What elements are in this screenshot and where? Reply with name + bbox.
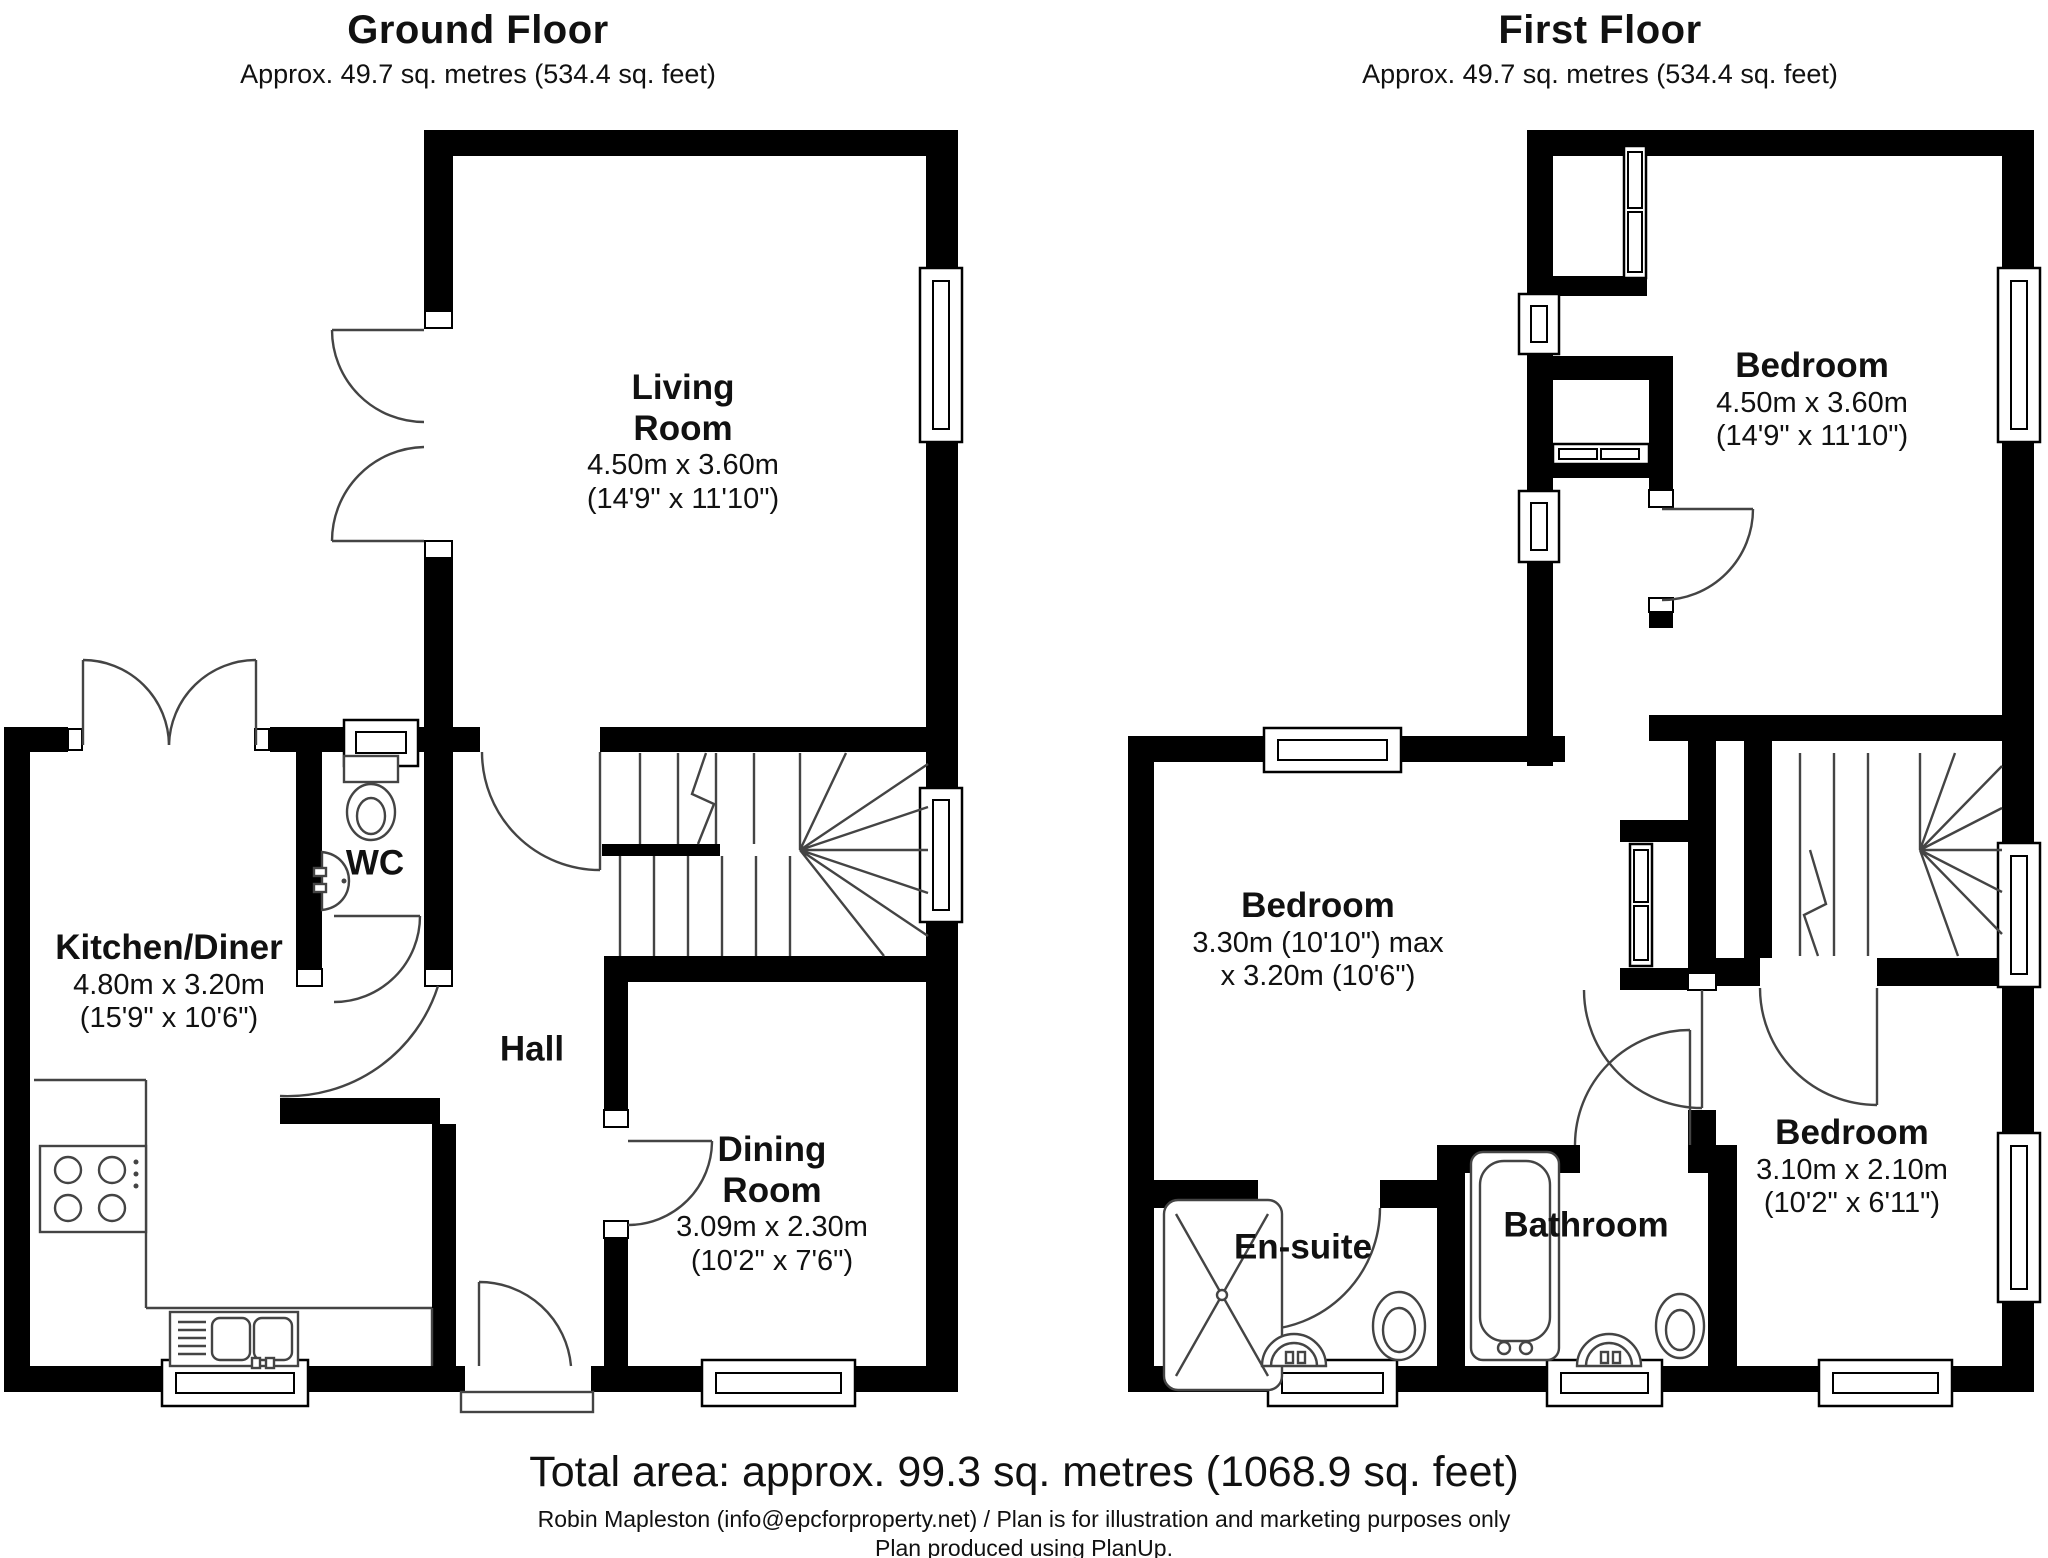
total-area-text: Total area: approx. 99.3 sq. metres (106… xyxy=(529,1448,1519,1497)
window xyxy=(1998,1133,2040,1302)
room-name: Bedroom xyxy=(1192,886,1443,927)
stairs xyxy=(1800,753,2002,956)
room-dim-imperial: (14'9" x 11'10") xyxy=(587,483,779,517)
room-dim-metric: 4.50m x 3.60m xyxy=(587,449,779,483)
attribution-text: Robin Mapleston (info@epcforproperty.net… xyxy=(529,1506,1519,1533)
dining-room-label: Dining Room 3.09m x 2.30m (10'2" x 7'6") xyxy=(676,1130,868,1278)
room-dim-metric: 3.30m (10'10") max xyxy=(1192,927,1443,961)
door-arc xyxy=(169,660,256,745)
door-arc xyxy=(332,330,424,422)
shelf-unit xyxy=(1624,146,1646,278)
door-arc xyxy=(332,447,424,541)
bedroom-three-label: Bedroom 3.10m x 2.10m (10'2" x 6'11") xyxy=(1756,1113,1948,1221)
hall-label: Hall xyxy=(500,1030,564,1071)
room-dim-imperial: x 3.20m (10'6") xyxy=(1192,960,1443,994)
room-dim-imperial: (10'2" x 6'11") xyxy=(1756,1187,1948,1221)
floorplan-drawing xyxy=(0,0,2048,1558)
floor-area-subtitle: Approx. 49.7 sq. metres (534.4 sq. feet) xyxy=(240,59,716,90)
window xyxy=(1819,1360,1952,1406)
window xyxy=(1519,294,1559,354)
stairs-break-line xyxy=(692,753,714,844)
door-arc xyxy=(83,660,169,745)
toilet-icon xyxy=(1373,1292,1425,1360)
floor-area-subtitle: Approx. 49.7 sq. metres (534.4 sq. feet) xyxy=(1362,59,1838,90)
door-arc xyxy=(334,916,420,1002)
door-arc xyxy=(1575,1030,1690,1145)
footer: Total area: approx. 99.3 sq. metres (106… xyxy=(529,1448,1519,1558)
bedroom-two-label: Bedroom 3.30m (10'10") max x 3.20m (10'6… xyxy=(1192,886,1443,994)
room-name: Kitchen/Diner xyxy=(55,928,283,969)
shelf-unit xyxy=(1553,444,1649,464)
window xyxy=(1998,843,2040,987)
room-name: En-suite xyxy=(1234,1228,1372,1269)
bathroom-fittings xyxy=(1471,1152,1704,1366)
sink-icon xyxy=(1577,1334,1641,1366)
room-dim-metric: 4.50m x 3.60m xyxy=(1716,387,1908,421)
kitchen-diner-label: Kitchen/Diner 4.80m x 3.20m (15'9" x 10'… xyxy=(55,928,283,1036)
stairs-break-line xyxy=(1804,850,1826,956)
room-name: Bedroom xyxy=(1756,1113,1948,1154)
room-name: Hall xyxy=(500,1030,564,1071)
door-arc xyxy=(479,1282,571,1366)
produced-by-text: Plan produced using PlanUp. xyxy=(529,1535,1519,1558)
room-name: WC xyxy=(346,844,404,885)
window xyxy=(920,268,962,442)
window xyxy=(1998,268,2040,442)
room-dim-imperial: (14'9" x 11'10") xyxy=(1716,420,1908,454)
room-name: Bedroom xyxy=(1716,346,1908,387)
room-name: Bathroom xyxy=(1503,1206,1668,1247)
shelf-unit xyxy=(1630,844,1652,966)
room-name: Room xyxy=(587,408,779,449)
bathtub-icon xyxy=(1471,1152,1559,1360)
room-name: Living xyxy=(587,368,779,409)
page-title: Ground Floor xyxy=(240,8,716,53)
toilet-icon xyxy=(1656,1294,1704,1358)
living-room-label: Living Room 4.50m x 3.60m (14'9" x 11'10… xyxy=(587,368,779,516)
porch-canopy xyxy=(461,1392,593,1412)
toilet-icon xyxy=(344,756,398,840)
hob-icon xyxy=(40,1146,146,1232)
room-dim-imperial: (10'2" x 7'6") xyxy=(676,1245,868,1279)
wc-fittings xyxy=(314,756,398,910)
first-floor-title: First Floor Approx. 49.7 sq. metres (534… xyxy=(1362,8,1838,90)
room-dim-metric: 3.09m x 2.30m xyxy=(676,1211,868,1245)
kitchen-sink-icon xyxy=(170,1312,298,1368)
door-arc xyxy=(1662,509,1753,600)
floorplan-page: Ground Floor Approx. 49.7 sq. metres (53… xyxy=(0,0,2048,1558)
room-dim-metric: 3.10m x 2.10m xyxy=(1756,1154,1948,1188)
door-arc xyxy=(1584,990,1702,1108)
room-dim-metric: 4.80m x 3.20m xyxy=(55,969,283,1003)
room-name: Dining xyxy=(676,1130,868,1171)
window xyxy=(1519,491,1559,562)
room-name: Room xyxy=(676,1170,868,1211)
ground-floor-title: Ground Floor Approx. 49.7 sq. metres (53… xyxy=(240,8,716,90)
bedroom-master-label: Bedroom 4.50m x 3.60m (14'9" x 11'10") xyxy=(1716,346,1908,454)
window xyxy=(702,1360,855,1406)
room-dim-imperial: (15'9" x 10'6") xyxy=(55,1002,283,1036)
en-suite-label: En-suite xyxy=(1234,1228,1372,1269)
window xyxy=(1264,728,1401,772)
wc-label: WC xyxy=(346,844,404,885)
door-arc xyxy=(280,986,438,1096)
door-arc xyxy=(1760,988,1877,1105)
bathroom-label: Bathroom xyxy=(1503,1206,1668,1247)
door-arc xyxy=(482,752,600,870)
page-title: First Floor xyxy=(1362,8,1838,53)
